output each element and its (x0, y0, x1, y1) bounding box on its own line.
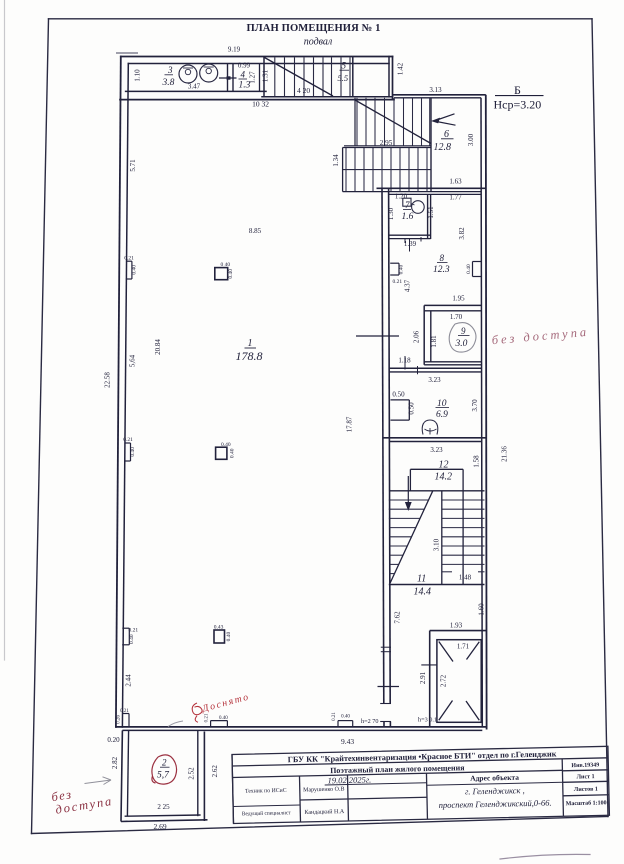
svg-text:9.19: 9.19 (228, 46, 241, 54)
svg-text:1.77: 1.77 (449, 194, 462, 202)
svg-text:3: 3 (167, 65, 173, 75)
svg-text:0.43: 0.43 (214, 624, 224, 630)
svg-text:2.91: 2.91 (419, 671, 427, 684)
svg-text:0.40: 0.40 (228, 269, 234, 279)
svg-text:1.81: 1.81 (430, 335, 438, 348)
svg-text:1 48: 1 48 (459, 574, 472, 582)
svg-text:7.62: 7.62 (393, 611, 401, 624)
svg-text:3.82: 3.82 (458, 227, 466, 240)
svg-text:3.10: 3.10 (433, 538, 441, 551)
svg-text:5,64: 5,64 (129, 354, 137, 367)
svg-text:3.0: 3.0 (455, 339, 468, 349)
svg-text:1.60: 1.60 (477, 603, 485, 616)
svg-text:5: 5 (342, 61, 347, 71)
svg-text:Инв.19349: Инв.19349 (571, 762, 599, 769)
svg-text:3.23: 3.23 (428, 376, 441, 384)
svg-text:5.71: 5.71 (129, 159, 137, 172)
svg-text:2 25: 2 25 (157, 803, 170, 811)
svg-text:Листов 1: Листов 1 (574, 787, 598, 794)
svg-text:0.40: 0.40 (466, 264, 472, 274)
svg-text:2.62: 2.62 (211, 765, 219, 778)
svg-text:1.42: 1.42 (397, 62, 405, 75)
svg-text:3.70: 3.70 (471, 399, 479, 412)
svg-text:2.44: 2.44 (124, 674, 132, 687)
svg-text:9: 9 (461, 326, 466, 336)
svg-text:1.70: 1.70 (450, 313, 463, 321)
svg-text:9.43: 9.43 (341, 737, 354, 746)
svg-text:3.8: 3.8 (162, 78, 175, 88)
svg-text:Марушенко О.В: Марушенко О.В (303, 787, 344, 794)
svg-text:22.58: 22.58 (104, 372, 112, 388)
svg-text:0.40: 0.40 (129, 634, 135, 644)
svg-text:1.6: 1.6 (402, 212, 414, 222)
svg-text:21.36: 21.36 (501, 446, 509, 462)
svg-text:0.21: 0.21 (129, 628, 139, 634)
svg-text:Б: Б (514, 83, 521, 97)
svg-text:1.39: 1.39 (404, 240, 417, 248)
svg-text:Ведущий специалист: Ведущий специалист (242, 809, 292, 817)
svg-text:17.87: 17.87 (346, 416, 354, 432)
svg-text:2.82: 2.82 (111, 756, 119, 769)
svg-text:1: 1 (248, 338, 253, 349)
svg-text:19.02.2025г.: 19.02.2025г. (327, 774, 371, 785)
svg-text:0.21: 0.21 (123, 437, 133, 443)
svg-text:0.50: 0.50 (392, 391, 405, 399)
svg-text:Масштаб 1:100: Масштаб 1:100 (566, 799, 607, 807)
svg-text:5,7: 5,7 (157, 771, 170, 781)
svg-text:0 40: 0 40 (221, 262, 231, 268)
svg-text:12.8: 12.8 (434, 142, 452, 153)
svg-text:0.21: 0.21 (120, 709, 129, 714)
svg-text:h=3 0.1: h=3 0.1 (418, 717, 437, 724)
svg-text:Кандацкий Н.А: Кандацкий Н.А (304, 808, 345, 816)
svg-text:подвал: подвал (304, 37, 333, 48)
svg-text:4 20: 4 20 (297, 86, 310, 95)
svg-text:0.99: 0.99 (238, 62, 251, 70)
svg-text:1.34: 1.34 (332, 154, 340, 167)
svg-text:0.40: 0.40 (132, 265, 138, 275)
svg-text:4.37: 4.37 (403, 279, 411, 292)
svg-text:3.13: 3.13 (429, 86, 442, 94)
svg-text:0.40: 0.40 (219, 716, 228, 721)
svg-text:1.51: 1.51 (427, 206, 435, 219)
svg-text:0.21: 0.21 (124, 255, 134, 261)
svg-text:2.06: 2.06 (412, 330, 420, 343)
svg-text:0.26: 0.26 (117, 715, 122, 724)
svg-text:4: 4 (241, 70, 246, 80)
svg-text:2.52: 2.52 (188, 767, 196, 780)
svg-text:0.40: 0.40 (130, 447, 136, 457)
svg-text:2: 2 (162, 758, 167, 768)
svg-text:6.9: 6.9 (436, 410, 448, 420)
svg-text:1.30: 1.30 (387, 207, 395, 220)
svg-text:2.69: 2.69 (153, 822, 166, 831)
svg-text:г. Геленджикск ,: г. Геленджикск , (465, 785, 525, 796)
svg-text:1.31: 1.31 (262, 69, 270, 82)
svg-text:10 32: 10 32 (252, 100, 269, 109)
svg-text:20.84: 20.84 (154, 339, 162, 355)
svg-text:178.8: 178.8 (236, 349, 263, 363)
svg-text:0.21: 0.21 (204, 713, 209, 722)
svg-text:1.93: 1.93 (450, 622, 463, 630)
svg-text:Адрес объекта: Адрес объекта (470, 773, 519, 783)
svg-text:5.5: 5.5 (338, 73, 349, 83)
svg-text:Нср=3.20: Нср=3.20 (494, 98, 542, 112)
svg-text:0.40: 0.40 (341, 715, 350, 720)
svg-text:1.10: 1.10 (134, 69, 142, 82)
svg-text:0.40: 0.40 (230, 448, 236, 458)
svg-text:0.40: 0.40 (226, 632, 232, 642)
svg-text:1.27: 1.27 (249, 71, 257, 84)
svg-text:2.72: 2.72 (440, 674, 448, 687)
svg-text:12.3: 12.3 (433, 265, 450, 275)
svg-text:0.40: 0.40 (221, 442, 231, 448)
svg-text:1.58: 1.58 (472, 455, 480, 468)
svg-text:8.85: 8.85 (249, 227, 262, 235)
svg-text:Техник по ИСиС: Техник по ИСиС (245, 788, 287, 795)
svg-text:8: 8 (440, 253, 445, 263)
svg-text:11: 11 (417, 574, 426, 585)
svg-text:Лист 1: Лист 1 (576, 774, 594, 780)
svg-text:1.63: 1.63 (449, 178, 462, 186)
svg-text:h=2 70: h=2 70 (361, 718, 378, 725)
svg-text:3.00: 3.00 (467, 133, 475, 146)
svg-text:0.21: 0.21 (393, 279, 403, 285)
svg-text:0.40: 0.40 (398, 264, 404, 274)
svg-text:14.2: 14.2 (435, 472, 453, 483)
svg-text:2.95: 2.95 (380, 139, 393, 147)
svg-text:3.47: 3.47 (188, 83, 201, 91)
svg-text:ПЛАН ПОМЕЩЕНИЯ № 1: ПЛАН ПОМЕЩЕНИЯ № 1 (246, 23, 380, 34)
svg-text:0.21: 0.21 (332, 712, 337, 721)
svg-text:0.20: 0.20 (107, 736, 120, 744)
svg-text:7: 7 (405, 200, 410, 210)
svg-text:1.95: 1.95 (452, 295, 465, 303)
svg-text:3.23: 3.23 (430, 446, 443, 454)
svg-text:14.4: 14.4 (414, 587, 432, 598)
svg-text:1.71: 1.71 (457, 643, 470, 651)
